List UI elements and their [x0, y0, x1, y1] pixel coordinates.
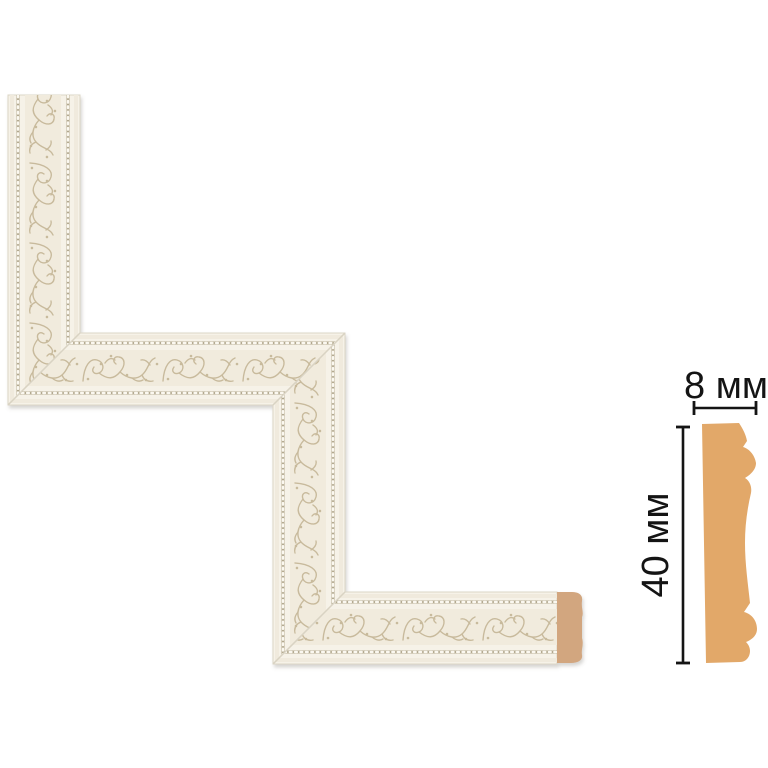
molding-end-cap: [557, 592, 583, 663]
product-image: 8 мм 40 мм: [0, 0, 768, 768]
profile-cross-section: [702, 423, 757, 663]
width-dimension-label: 8 мм: [684, 365, 768, 407]
height-dimension-label: 40 мм: [635, 492, 677, 597]
